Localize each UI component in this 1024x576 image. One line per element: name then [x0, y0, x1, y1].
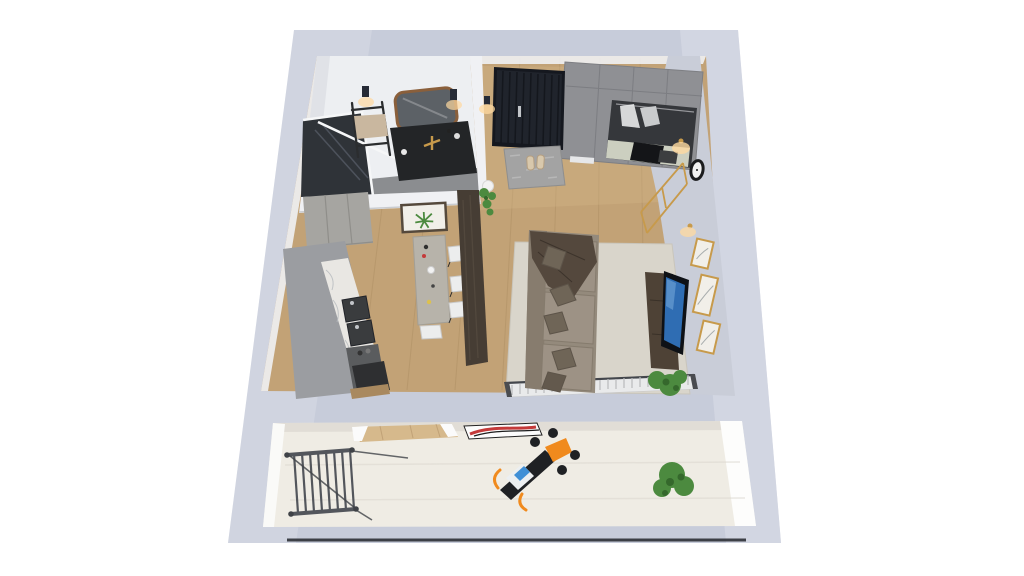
- bathroom: [301, 56, 482, 197]
- tall-cabinets: [303, 192, 373, 249]
- red-decor: [422, 254, 426, 258]
- yellow-decor: [427, 300, 431, 304]
- plate: [428, 267, 435, 274]
- door-handle: [518, 106, 521, 117]
- doormat: [504, 146, 565, 189]
- floor-plan-render: [0, 0, 1024, 576]
- bottle: [424, 245, 428, 249]
- balcony: [263, 421, 756, 527]
- palm-artwork: [401, 203, 446, 232]
- sofa: [525, 230, 599, 393]
- vanity-sink: [390, 121, 477, 181]
- dining-table: [413, 235, 450, 325]
- living-area: [504, 230, 698, 397]
- render-canvas: [0, 0, 1024, 576]
- entrance-door: [495, 70, 562, 146]
